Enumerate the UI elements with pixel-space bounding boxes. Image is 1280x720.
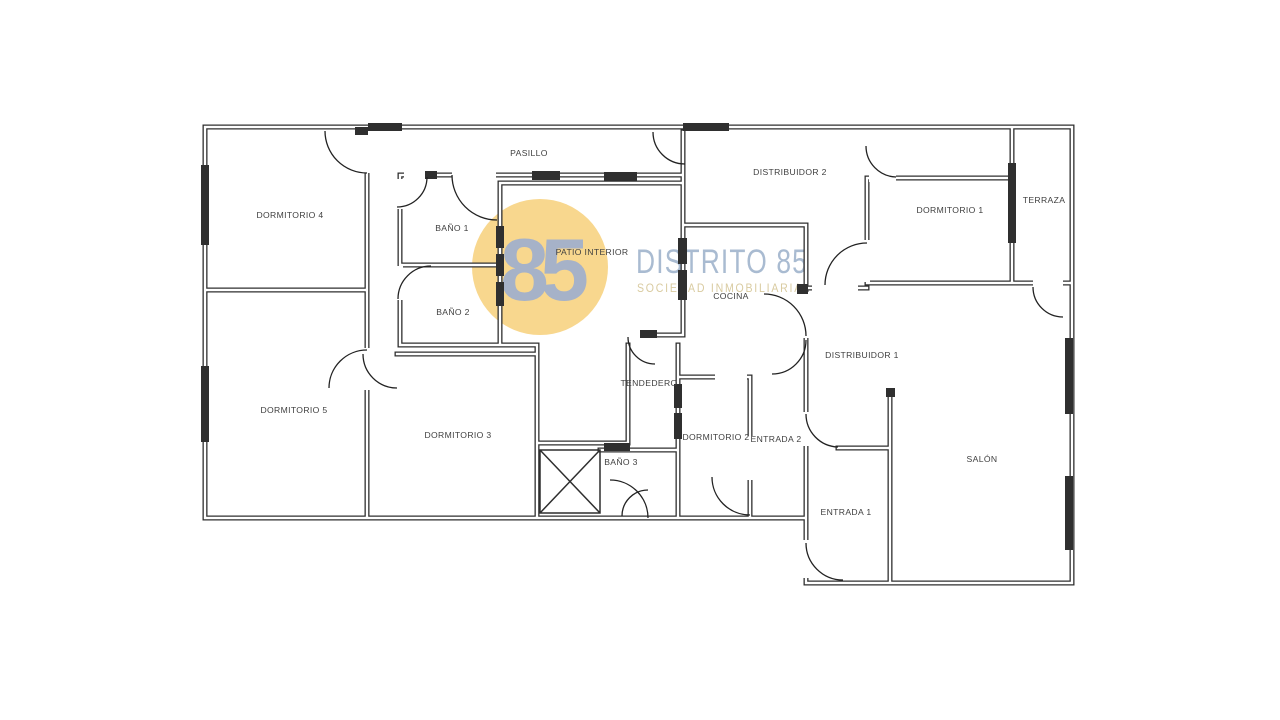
window-mark: [604, 443, 630, 451]
room-label-pasillo: PASILLO: [510, 148, 548, 158]
door-opening: [364, 131, 370, 173]
door-leaf-mark: [797, 284, 808, 294]
room-label-dormitorio-4: DORMITORIO 4: [256, 210, 323, 220]
door-opening: [864, 240, 870, 282]
door-opening: [812, 285, 858, 292]
wall-outline: [205, 127, 1072, 583]
window-mark: [496, 282, 504, 306]
room-label-entrada-1: ENTRADA 1: [821, 507, 872, 517]
window-mark: [1065, 476, 1073, 550]
window-mark: [496, 226, 504, 248]
door-opening: [715, 374, 747, 381]
room-label-distribuidor-2: DISTRIBUIDOR 2: [753, 167, 827, 177]
shaft-crossed-box: [540, 450, 600, 513]
window-mark: [1008, 163, 1016, 243]
door-opening: [1033, 280, 1063, 287]
room-label-tendedero: TENDEDERO: [620, 378, 677, 388]
window-mark: [683, 123, 729, 131]
watermark-logo: 85 DISTRITO 85 SOCIEDAD INMOBILIARIA: [472, 199, 808, 335]
room-label-patio-interior: PATIO INTERIOR: [556, 247, 629, 257]
room-label-salon: SALÓN: [967, 454, 998, 464]
window-mark: [201, 366, 209, 442]
wall-core: [205, 127, 1072, 583]
watermark-brand-text: DISTRITO 85: [636, 243, 808, 281]
room-label-entrada-2: ENTRADA 2: [751, 434, 802, 444]
window-mark: [604, 172, 637, 181]
window-mark: [1065, 338, 1073, 414]
floor-plan-page: 85 DISTRITO 85 SOCIEDAD INMOBILIARIA: [0, 0, 1280, 720]
window-mark: [532, 171, 560, 180]
room-label-dormitorio-2: DORMITORIO 2: [682, 432, 749, 442]
door-opening: [397, 179, 403, 209]
room-label-bano-3: BAÑO 3: [604, 457, 638, 467]
window-mark: [674, 413, 682, 439]
room-label-distribuidor-1: DISTRIBUIDOR 1: [825, 350, 899, 360]
door-leaf-mark: [355, 127, 368, 135]
room-label-dormitorio-1: DORMITORIO 1: [916, 205, 983, 215]
window-mark: [678, 270, 687, 300]
wall-cap-mark: [886, 388, 895, 397]
door-leaf-mark: [640, 330, 657, 338]
window-mark: [201, 165, 209, 245]
room-label-dormitorio-5: DORMITORIO 5: [260, 405, 327, 415]
room-label-bano-1: BAÑO 1: [435, 223, 469, 233]
room-label-bano-2: BAÑO 2: [436, 307, 470, 317]
door-opening: [452, 172, 496, 179]
window-mark: [678, 238, 687, 264]
room-label-cocina: COCINA: [713, 291, 749, 301]
watermark-monogram: 85: [500, 220, 587, 319]
room-label-terraza: TERRAZA: [1023, 195, 1066, 205]
window-mark: [368, 123, 402, 131]
window-marks: [201, 123, 1073, 550]
room-label-dormitorio-3: DORMITORIO 3: [424, 430, 491, 440]
floor-plan-drawing: 85 DISTRITO 85 SOCIEDAD INMOBILIARIA: [0, 0, 1280, 720]
window-mark: [496, 254, 504, 276]
walls: [205, 127, 1072, 583]
